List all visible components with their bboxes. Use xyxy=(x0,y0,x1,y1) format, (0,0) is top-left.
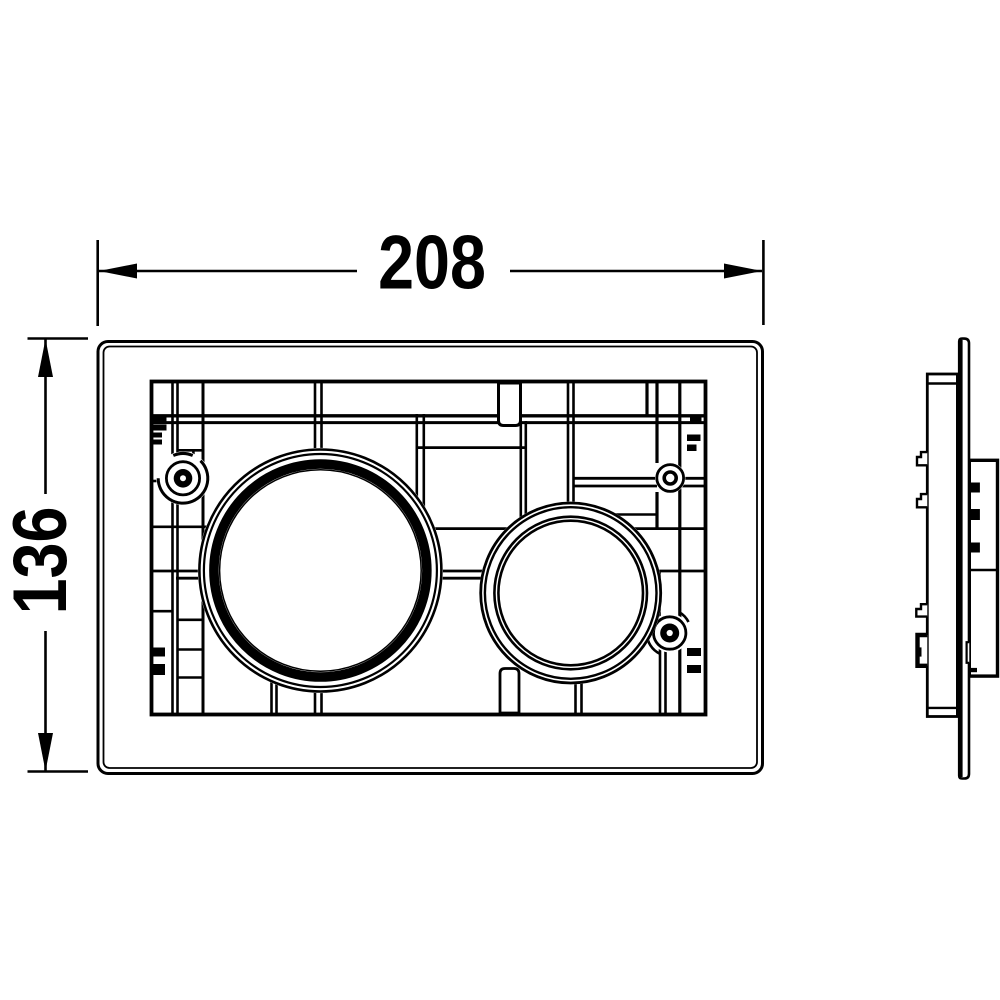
svg-text:208: 208 xyxy=(378,220,486,305)
svg-text:136: 136 xyxy=(0,507,82,615)
